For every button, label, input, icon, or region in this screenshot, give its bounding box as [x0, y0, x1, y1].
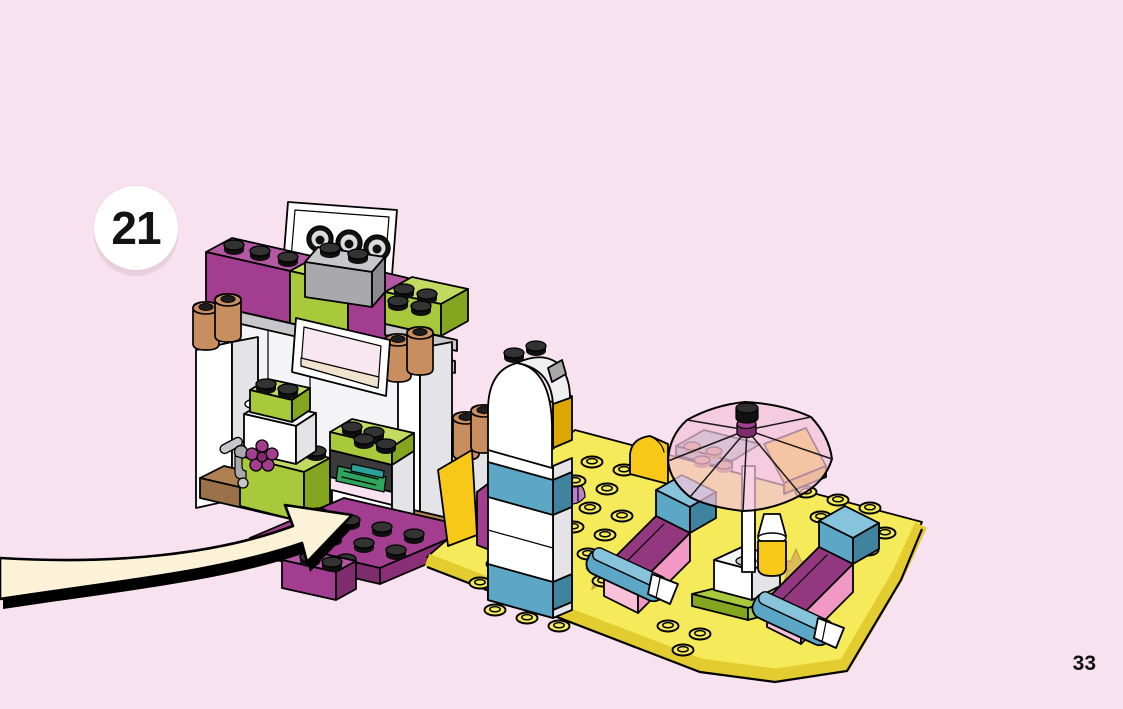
page-number: 33 [1073, 652, 1096, 676]
step-number-badge: 21 [94, 186, 178, 270]
instruction-page: 21 33 [0, 0, 1123, 709]
step-number: 21 [111, 201, 160, 255]
shower-tower [488, 341, 572, 618]
canopy-top-stud [736, 403, 758, 438]
drink-bottle [758, 514, 786, 576]
build-illustration [0, 0, 1123, 709]
